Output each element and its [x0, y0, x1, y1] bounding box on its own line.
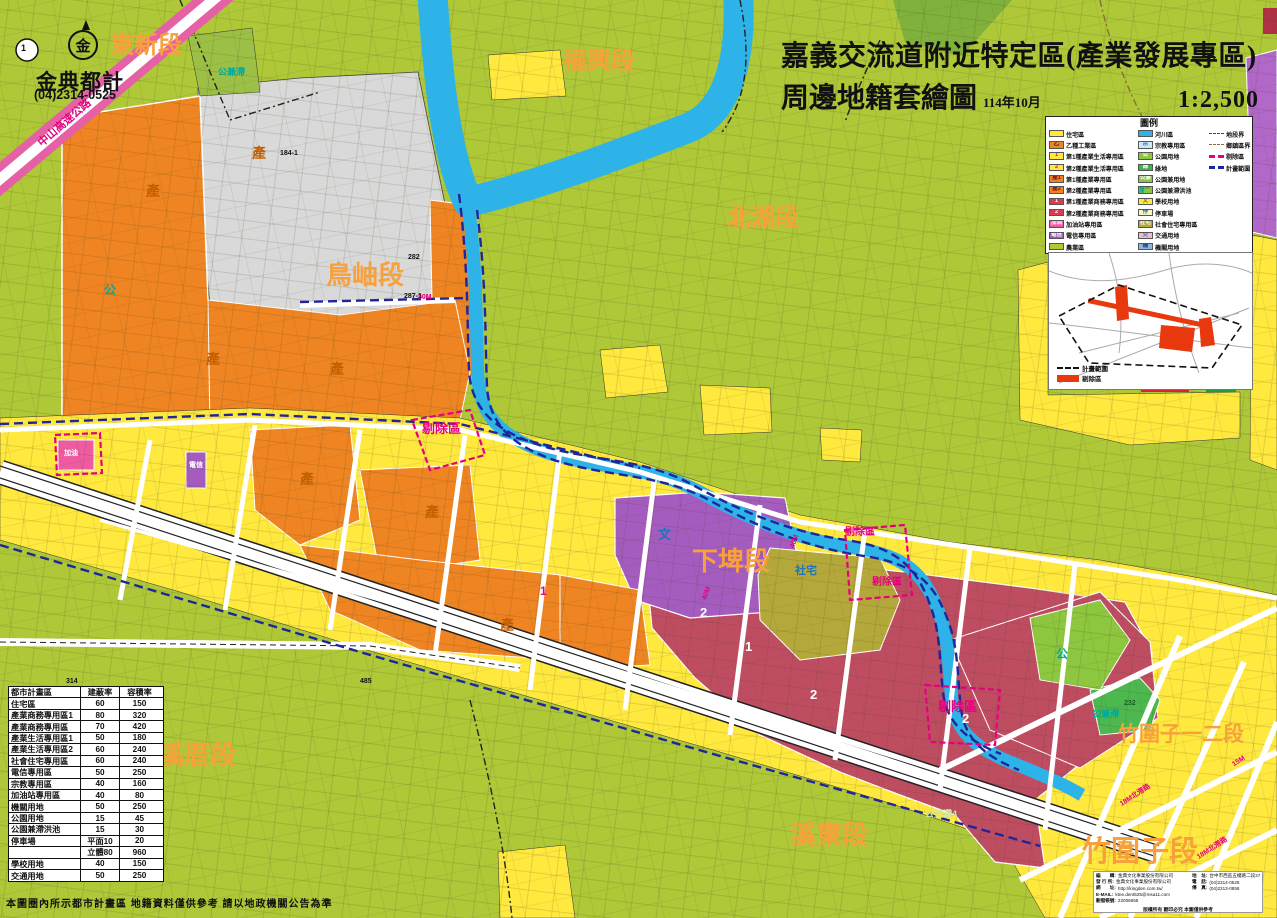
legend-item-label: 綠地 [1155, 163, 1167, 172]
far-cell: 960 [120, 847, 159, 857]
district-cell: 公園兼滯洪池 [9, 824, 81, 834]
legend-item: 宗 宗教專用區 [1138, 139, 1209, 150]
district-cell: 社會住宅專用區 [9, 756, 81, 766]
table-row: 學校用地 40 150 [9, 859, 163, 870]
legend-zone-column-left: 住宅區 乙 乙種工業區 1 第1種產業生活專用區 2 第2種產業生活專 [1049, 128, 1138, 252]
zoning-table-header: 都市計畫區 建蔽率 容積率 [9, 687, 163, 698]
legend-item-label: 機關用地 [1155, 242, 1179, 251]
legend-item: 文 學校用地 [1138, 196, 1209, 207]
info-key: 劃撥帳號: [1096, 898, 1116, 904]
legend-swatch: 產2 [1049, 186, 1064, 194]
legend-item-label: 公園用地 [1155, 152, 1179, 161]
legend-swatch: 1 [1049, 152, 1064, 160]
legend-swatch-code: 文 [1143, 199, 1149, 205]
legend-line-label: 剔除區 [1226, 152, 1244, 161]
info-right-column: 地 址: 台中市西區五權路二段27號 電 話: (04)2314-0525 傳 … [1192, 873, 1260, 904]
legend-swatch-code: 停 [1143, 210, 1149, 216]
table-row: 加油站專用區 40 80 [9, 790, 163, 801]
info-row: 傳 真: (04)2313-0858 [1192, 885, 1260, 891]
legend-swatch: 社宅 [1138, 220, 1153, 228]
legend-item-label: 第1種產業專用區 [1066, 174, 1112, 183]
legend-item: 公兼 公園兼用地 [1138, 173, 1209, 184]
far-cell: 45 [120, 813, 159, 823]
coverage-cell: 15 [81, 813, 120, 823]
legend-line-item: 剔除區 [1209, 151, 1249, 162]
far-cell: 20 [120, 836, 159, 846]
coverage-cell: 70 [81, 721, 120, 731]
legend-swatch-code: 社宅 [1140, 221, 1151, 227]
legend-swatch: 1 [1049, 198, 1064, 206]
legend-zone-column-right: 河川區 宗 宗教專用區 公 公園用地 綠 綠地 [1138, 128, 1209, 252]
legend-item: 住宅區 [1049, 128, 1138, 139]
col-header-district: 都市計畫區 [9, 687, 81, 697]
legend-swatch: 2 [1049, 209, 1064, 217]
legend-line-sample [1209, 166, 1224, 169]
table-row: 產業生活專用區1 50 180 [9, 733, 163, 744]
district-cell: 產業商務專用區 [9, 721, 81, 731]
far-cell: 30 [120, 824, 159, 834]
district-cell: 電信專用區 [9, 767, 81, 777]
zoning-table-body: 住宅區 60 150 產業商務專用區1 80 320 產業商務專用區 70 42… [9, 698, 163, 881]
legend-swatch-code: 公兼滯 [1139, 186, 1152, 194]
far-cell: 250 [120, 767, 159, 777]
legend-item-label: 乙種工業區 [1066, 140, 1096, 149]
legend-line-label: 計畫範圍 [1226, 163, 1250, 172]
legend-item-label: 學校用地 [1155, 197, 1179, 206]
legend-swatch-code: 公兼 [1140, 176, 1151, 182]
info-key: 電 話: [1192, 879, 1207, 885]
coverage-cell: 80 [81, 710, 120, 720]
district-cell [9, 847, 81, 857]
inset-excluded-swatch [1057, 375, 1079, 382]
legend-swatch: 2 [1049, 164, 1064, 172]
district-cell: 產業生活專用區1 [9, 733, 81, 743]
info-key: 傳 真: [1192, 885, 1207, 891]
publisher-info-box: 編 輯: 金典文化事業股份有限公司 發 行 所: 金典文化事業股份有限公司 網 … [1093, 871, 1263, 913]
route-shield [16, 39, 38, 61]
district-cell: 機關用地 [9, 801, 81, 811]
legend-item-label: 農業區 [1066, 242, 1084, 251]
table-row: 產業商務專用區1 80 320 [9, 710, 163, 721]
legend-item: 交 交通用地 [1138, 230, 1209, 241]
legend-item: 1 第1種產業生活專用區 [1049, 151, 1138, 162]
legend-line-column: 地段界 鄉鎮區界 剔除區 計畫範圍 [1209, 128, 1249, 252]
legend-swatch: 電信 [1049, 232, 1064, 240]
far-cell: 150 [120, 698, 159, 708]
legend-swatch-code: 電信 [1051, 233, 1062, 239]
far-cell: 250 [120, 801, 159, 811]
info-value: http://kingden.com.tw/ [1118, 886, 1163, 891]
legend-line-item: 計畫範圍 [1209, 162, 1249, 173]
legend-swatch-code: 綠 [1143, 165, 1149, 171]
legend-box: 圖例 住宅區 乙 乙種工業區 1 第1種產業生活專用 [1045, 116, 1253, 254]
legend-swatch: 公 [1138, 152, 1153, 160]
table-row: 宗教專用區 40 160 [9, 779, 163, 790]
info-key: 發 行 所: [1096, 879, 1114, 885]
coverage-cell: 60 [81, 756, 120, 766]
legend-item: 乙 乙種工業區 [1049, 139, 1138, 150]
legend-item: 2 第2種產業生活專用區 [1049, 162, 1138, 173]
far-cell: 160 [120, 779, 159, 789]
legend-item-label: 第2種產業商務專用區 [1066, 208, 1124, 217]
legend-item: 河川區 [1138, 128, 1209, 139]
legend-item-label: 公園兼滯洪池 [1155, 186, 1191, 195]
district-cell: 產業商務專用區1 [9, 710, 81, 720]
coverage-cell: 40 [81, 790, 120, 800]
inset-legend: 計畫範圍 剔除區 [1057, 363, 1108, 383]
table-row: 電信專用區 50 250 [9, 767, 163, 778]
legend-item: 公 公園用地 [1138, 151, 1209, 162]
legend-item-label: 第1種產業生活專用區 [1066, 152, 1124, 161]
legend-item: 加油 加油站專用區 [1049, 218, 1138, 229]
legend-item-label: 第1種產業商務專用區 [1066, 197, 1124, 206]
legend-item: 社宅 社會住宅專用區 [1138, 218, 1209, 229]
inset-boundary-line-icon [1057, 367, 1079, 369]
table-row: 社會住宅專用區 60 240 [9, 756, 163, 767]
far-cell: 240 [120, 756, 159, 766]
legend-swatch [1049, 243, 1064, 251]
legend-item-label: 河川區 [1155, 129, 1173, 138]
disclaimer-note: 本圖圈內所示都市計畫區 地籍資料僅供參考 請以地政機關公告為準 [6, 895, 333, 910]
title-date: 114年10月 [983, 92, 1041, 111]
legend-line-sample [1209, 133, 1224, 134]
info-key: E-MAIL: [1096, 892, 1113, 897]
map-sheet: 東新段 福興段 北湖段 鳥岫段 下埤段 溪厝段 溪東段 竹圍子一二段 竹圍子段 … [0, 0, 1277, 918]
district-cell: 停車場 [9, 836, 81, 846]
info-value: 台中市西區五權路二段27號 [1209, 873, 1260, 879]
inset-overview-map: 計畫範圍 剔除區 [1048, 252, 1253, 390]
legend-swatch [1138, 130, 1153, 138]
coverage-cell: 40 [81, 779, 120, 789]
legend-swatch-code: 1 [1055, 199, 1058, 205]
legend-swatch-code: 產1 [1052, 176, 1061, 182]
legend-swatch-code: 公 [1143, 153, 1149, 159]
far-cell: 150 [120, 859, 159, 869]
district-cell: 公園用地 [9, 813, 81, 823]
legend-item: 2 第2種產業商務專用區 [1049, 207, 1138, 218]
coverage-cell: 40 [81, 859, 120, 869]
legend-swatch: 公兼 [1138, 175, 1153, 183]
col-header-far: 容積率 [120, 687, 159, 697]
map-title: 嘉義交流道附近特定區(產業發展專區) 周邊地籍套繪圖 114年10月 1:2,5… [781, 34, 1259, 116]
legend-title: 圖例 [1049, 119, 1249, 128]
legend-item: 停 停車場 [1138, 207, 1209, 218]
table-row: 機關用地 50 250 [9, 801, 163, 812]
far-cell: 250 [120, 870, 159, 881]
legend-swatch: 產1 [1049, 175, 1064, 183]
legend-swatch-code: 2 [1055, 165, 1058, 171]
legend-line-sample [1209, 155, 1224, 158]
info-left-column: 編 輯: 金典文化事業股份有限公司 發 行 所: 金典文化事業股份有限公司 網 … [1096, 873, 1192, 904]
legend-swatch-code: 加油 [1051, 221, 1062, 227]
legend-item: 農業區 [1049, 241, 1138, 252]
legend-swatch: 乙 [1049, 141, 1064, 149]
table-row: 產業生活專用區2 60 240 [9, 744, 163, 755]
district-cell: 住宅區 [9, 698, 81, 708]
district-cell: 交通用地 [9, 870, 81, 881]
district-cell: 宗教專用區 [9, 779, 81, 789]
info-value: 金典文化事業股份有限公司 [1118, 873, 1173, 879]
legend-swatch [1049, 130, 1064, 138]
info-row: 劃撥帳號: 22006655 [1096, 898, 1192, 904]
table-row: 公園用地 15 45 [9, 813, 163, 824]
far-cell: 80 [120, 790, 159, 800]
legend-swatch: 交 [1138, 232, 1153, 240]
info-value: ktne.dent525@msa11.com [1115, 892, 1170, 897]
legend-swatch: 機 [1138, 243, 1153, 251]
legend-item: 產2 第2種產業專用區 [1049, 184, 1138, 195]
info-value: (04)2313-0858 [1209, 886, 1239, 891]
info-value: 22006655 [1118, 898, 1138, 903]
district-cell: 加油站專用區 [9, 790, 81, 800]
table-row: 交通用地 50 250 [9, 870, 163, 881]
table-row: 住宅區 60 150 [9, 698, 163, 709]
legend-item: 公兼滯 公園兼滯洪池 [1138, 184, 1209, 195]
legend-item: 機 機關用地 [1138, 241, 1209, 252]
far-cell: 180 [120, 733, 159, 743]
legend-swatch: 停 [1138, 209, 1153, 217]
copyright-notice: 版權所有 翻印必究 本圖僅供參考 [1096, 906, 1260, 913]
coverage-cell: 15 [81, 824, 120, 834]
district-cell: 產業生活專用區2 [9, 744, 81, 754]
info-key: 編 輯: [1096, 873, 1116, 879]
title-line1: 嘉義交流道附近特定區(產業發展專區) [781, 34, 1259, 74]
table-row: 產業商務專用區 70 420 [9, 721, 163, 732]
legend-swatch: 文 [1138, 198, 1153, 206]
legend-swatch-code: 機 [1143, 244, 1149, 250]
table-row: 立體80 960 [9, 847, 163, 858]
legend-item-label: 交通用地 [1155, 231, 1179, 240]
zoning-table: 都市計畫區 建蔽率 容積率 住宅區 60 150 產業商務專用區1 80 320 [8, 686, 164, 882]
legend-swatch-code: 產2 [1052, 187, 1061, 193]
coverage-cell: 50 [81, 767, 120, 777]
far-cell: 240 [120, 744, 159, 754]
title-line2: 周邊地籍套繪圖 [781, 76, 977, 116]
coverage-cell: 50 [81, 870, 120, 881]
legend-swatch-code: 1 [1055, 153, 1058, 159]
far-cell: 420 [120, 721, 159, 731]
legend-item-label: 第2種產業專用區 [1066, 186, 1112, 195]
legend-line-item: 地段界 [1209, 128, 1249, 139]
coverage-cell: 立體80 [81, 847, 120, 857]
legend-swatch-code: 宗 [1143, 142, 1149, 148]
table-row: 公園兼滯洪池 15 30 [9, 824, 163, 835]
legend-item-label: 停車場 [1155, 208, 1173, 217]
legend-swatch-code: 2 [1055, 210, 1058, 216]
legend-line-label: 地段界 [1226, 129, 1244, 138]
legend-item: 產1 第1種產業專用區 [1049, 173, 1138, 184]
info-key: 地 址: [1192, 873, 1207, 879]
legend-item-label: 第2種產業生活專用區 [1066, 163, 1124, 172]
legend-item-label: 電信專用區 [1066, 231, 1096, 240]
legend-item: 綠 綠地 [1138, 162, 1209, 173]
legend-swatch: 公兼滯 [1138, 186, 1153, 194]
info-value: 金典文化事業股份有限公司 [1116, 879, 1171, 885]
north-compass-icon: 金 [68, 30, 98, 60]
coverage-cell: 60 [81, 744, 120, 754]
col-header-coverage: 建蔽率 [81, 687, 120, 697]
publisher-phone: (04)2314-0525 [34, 88, 116, 102]
district-cell: 學校用地 [9, 859, 81, 869]
legend-swatch-code: 交 [1143, 233, 1149, 239]
legend-item-label: 社會住宅專用區 [1155, 219, 1197, 228]
info-key: 網 址: [1096, 885, 1116, 891]
legend-line-label: 鄉鎮區界 [1226, 140, 1250, 149]
legend-item-label: 宗教專用區 [1155, 140, 1185, 149]
legend-swatch: 綠 [1138, 164, 1153, 172]
legend-item-label: 住宅區 [1066, 129, 1084, 138]
legend-item: 1 第1種產業商務專用區 [1049, 196, 1138, 207]
inset-excluded-label: 剔除區 [1082, 373, 1102, 383]
legend-item-label: 加油站專用區 [1066, 219, 1102, 228]
table-row: 停車場 平面10 20 [9, 836, 163, 847]
legend-item-label: 公園兼用地 [1155, 174, 1185, 183]
legend-item: 電信 電信專用區 [1049, 230, 1138, 241]
legend-swatch: 加油 [1049, 220, 1064, 228]
info-value: (04)2314-0525 [1209, 880, 1239, 885]
coverage-cell: 60 [81, 698, 120, 708]
legend-swatch: 宗 [1138, 141, 1153, 149]
map-scale: 1:2,500 [1178, 87, 1259, 114]
coverage-cell: 50 [81, 801, 120, 811]
inset-boundary-label: 計畫範圍 [1082, 363, 1108, 373]
far-cell: 320 [120, 710, 159, 720]
coverage-cell: 平面10 [81, 836, 120, 846]
coverage-cell: 50 [81, 733, 120, 743]
legend-line-item: 鄉鎮區界 [1209, 139, 1249, 150]
legend-line-sample [1209, 144, 1224, 145]
legend-swatch-code: 乙 [1054, 142, 1060, 148]
